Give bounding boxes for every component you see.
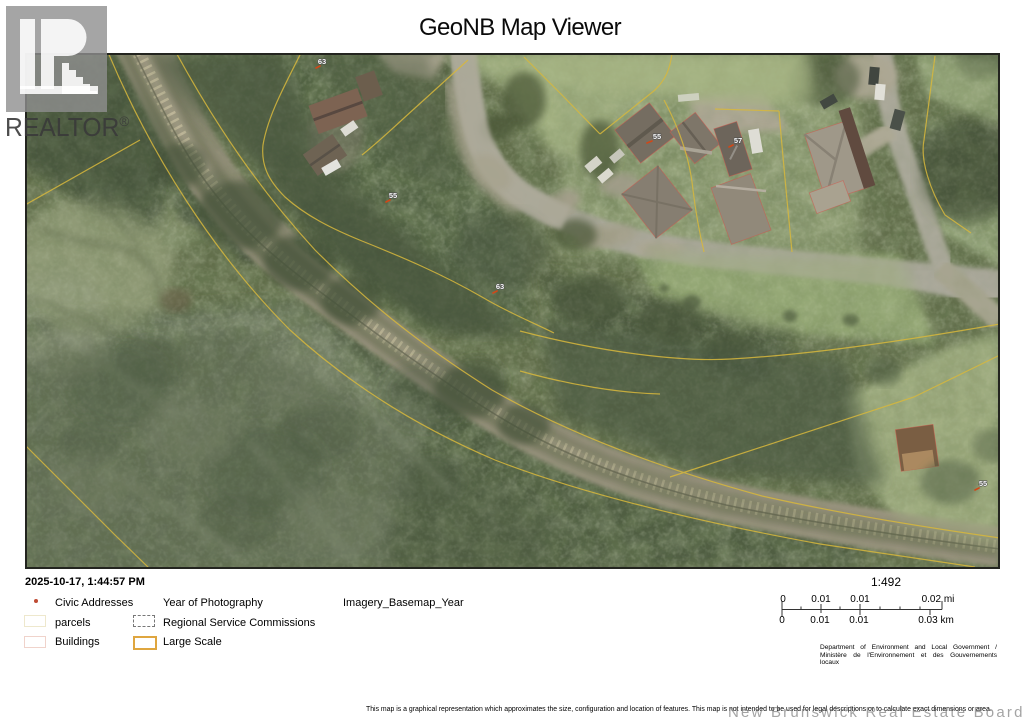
- svg-text:0.01: 0.01: [810, 615, 830, 626]
- svg-text:0.01: 0.01: [849, 615, 869, 626]
- svg-text:0.02 mi: 0.02 mi: [922, 594, 955, 605]
- svg-text:0: 0: [780, 594, 786, 605]
- svg-text:0.03 km: 0.03 km: [918, 615, 954, 626]
- svg-text:0.01: 0.01: [850, 594, 870, 605]
- svg-text:0: 0: [779, 615, 785, 626]
- svg-text:0.01: 0.01: [811, 594, 831, 605]
